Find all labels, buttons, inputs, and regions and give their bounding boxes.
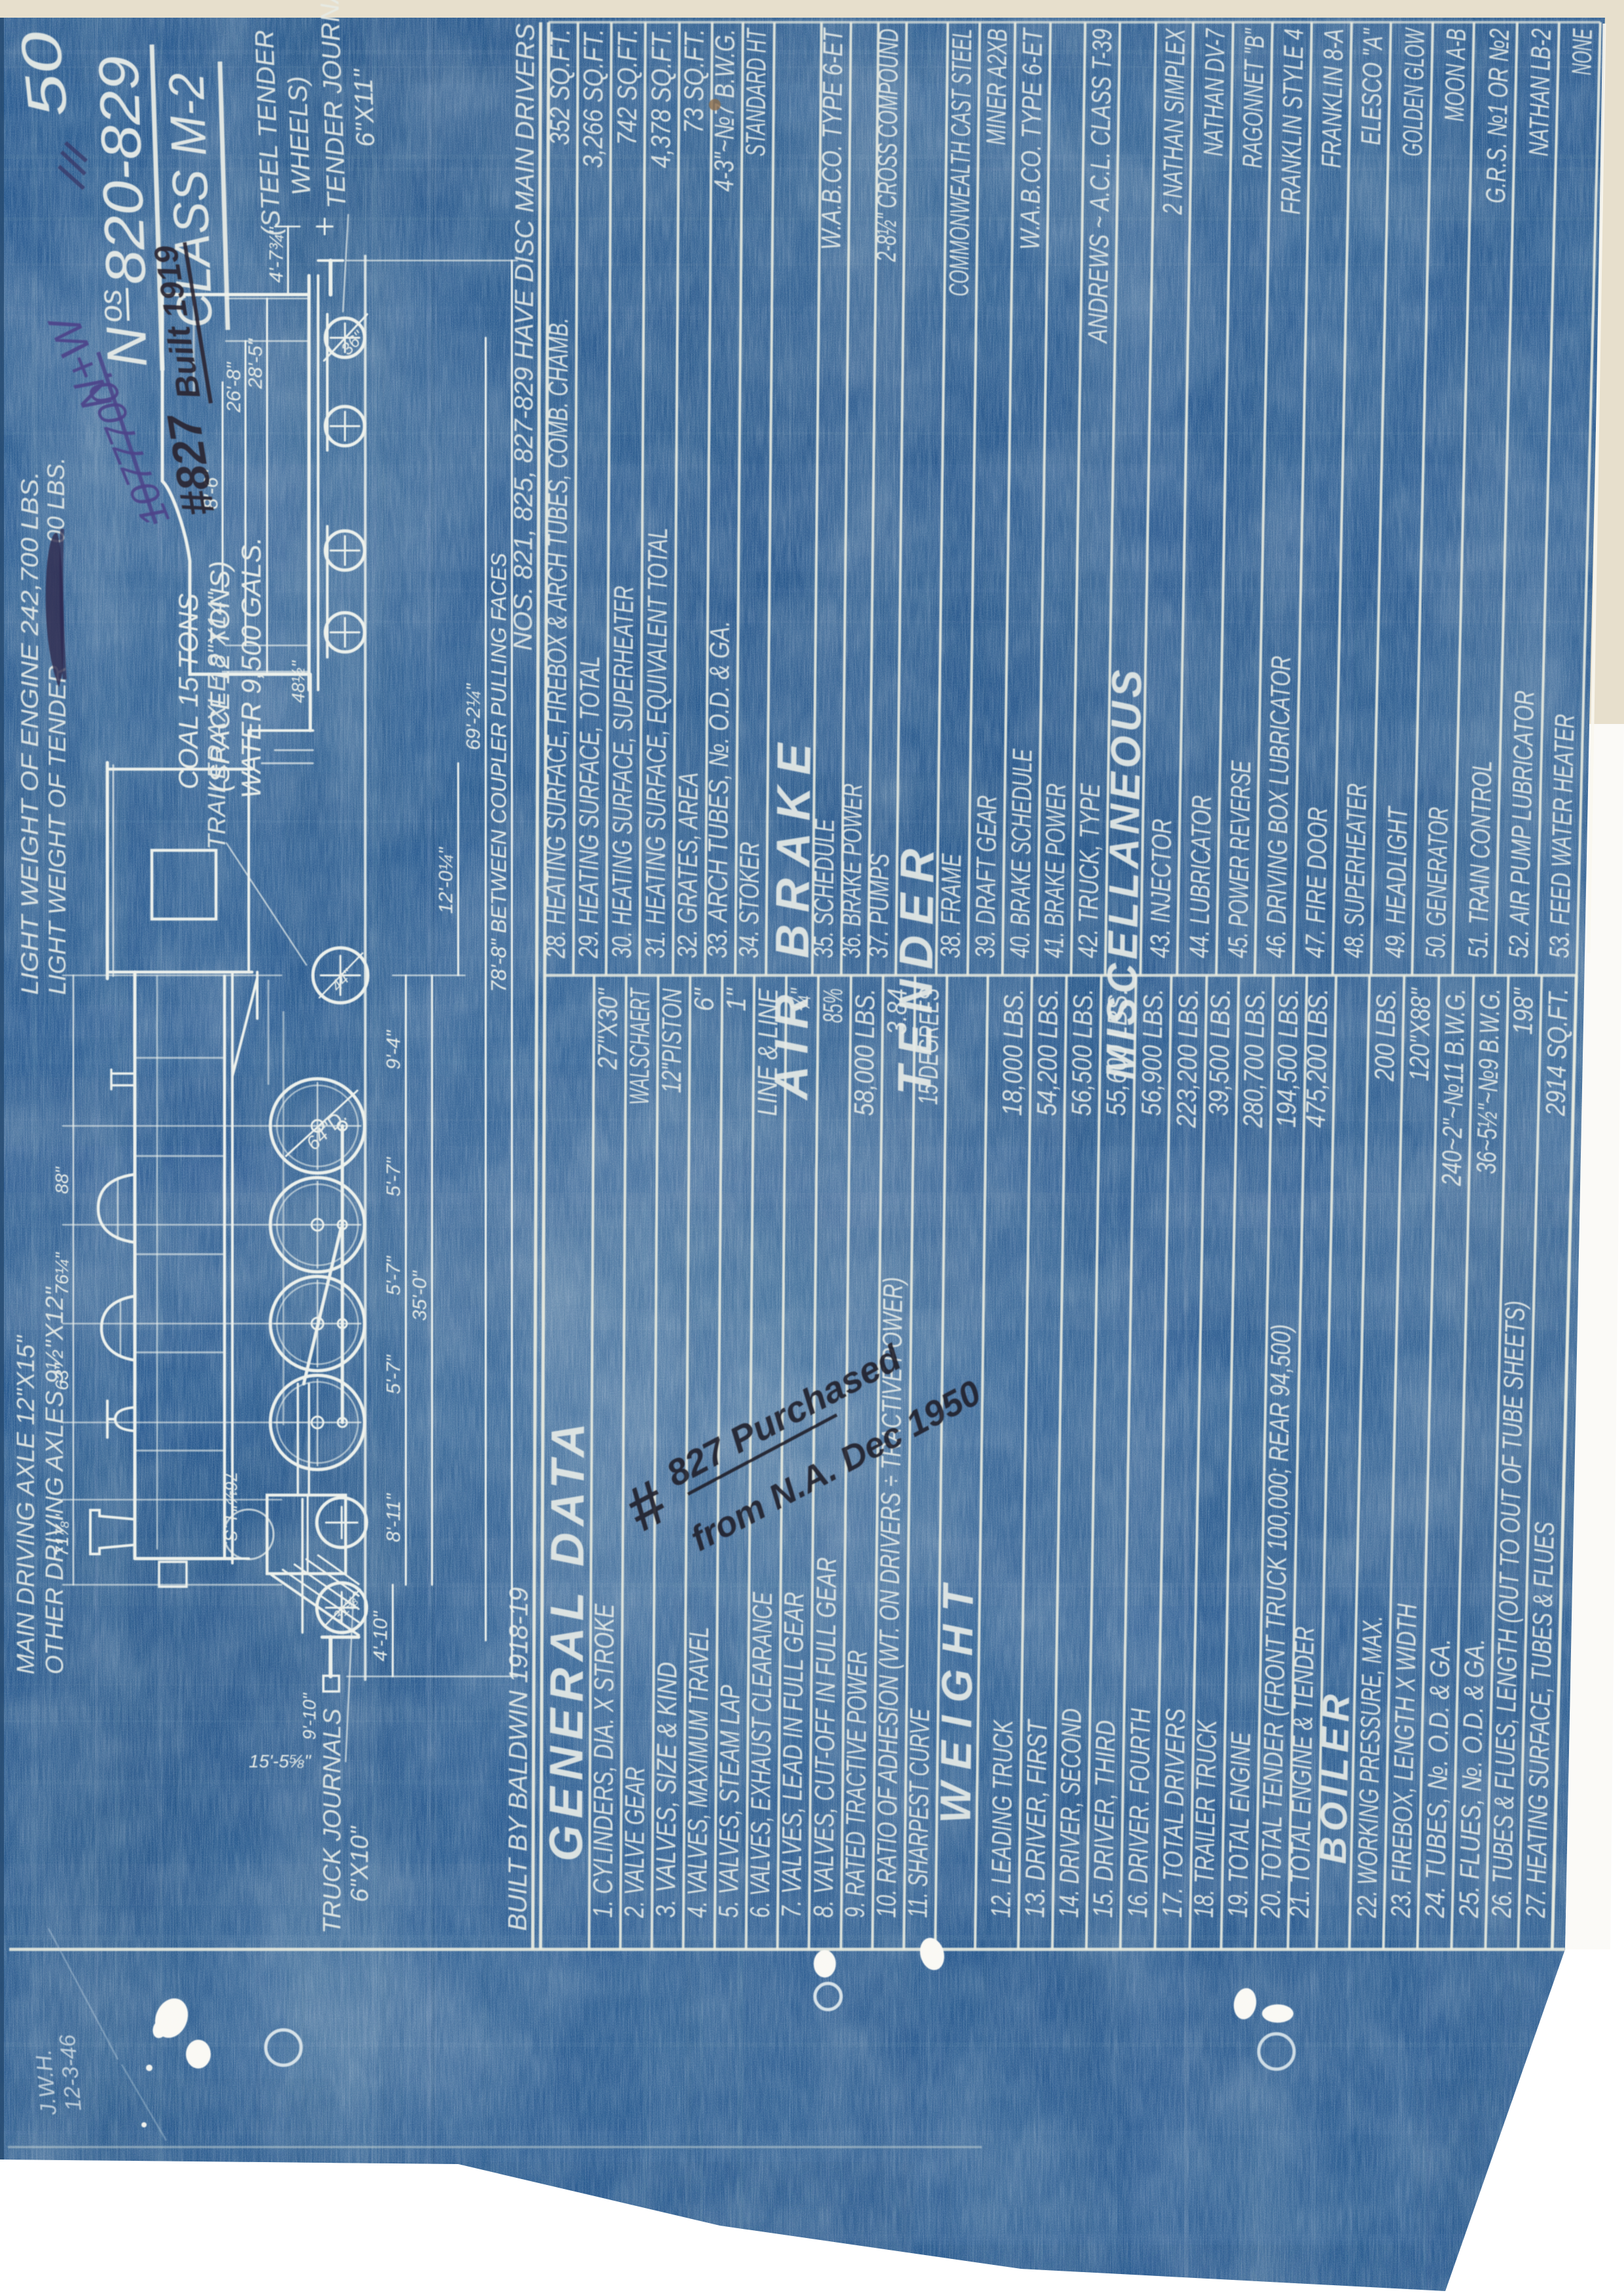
svg-text:TENDER: TENDER	[889, 838, 945, 1095]
svg-text:26'-8": 26'-8"	[223, 361, 245, 413]
svg-text:MOON A-B: MOON A-B	[1439, 28, 1471, 122]
svg-text:35'-0": 35'-0"	[409, 1270, 431, 1321]
svg-text:39,500 LBS.: 39,500 LBS.	[1203, 988, 1236, 1116]
svg-text:COAL 15 TONS: COAL 15 TONS	[173, 593, 204, 789]
svg-text:4. VALVES, MAXIMUM TRAVEL: 4. VALVES, MAXIMUM TRAVEL	[681, 1627, 714, 1918]
svg-text:WEIGHT: WEIGHT	[931, 1572, 983, 1824]
svg-text:11. SHARPEST CURVE: 11. SHARPEST CURVE	[902, 1708, 935, 1918]
svg-text:34. STOKER: 34. STOKER	[733, 842, 765, 958]
svg-text:9'-10": 9'-10"	[299, 1693, 319, 1740]
svg-text:NONE: NONE	[1566, 28, 1598, 76]
svg-text:58,000 LBS.: 58,000 LBS.	[848, 988, 880, 1116]
svg-text:G.R.S. №1 OR №2: G.R.S. №1 OR №2	[1480, 28, 1515, 204]
svg-text:6"X10": 6"X10"	[346, 1826, 374, 1902]
svg-text:5'-7": 5'-7"	[383, 1157, 405, 1197]
svg-text:7. VALVES, LEAD IN FULL GEAR: 7. VALVES, LEAD IN FULL GEAR	[776, 1592, 810, 1918]
svg-text:47. FIRE DOOR: 47. FIRE DOOR	[1299, 806, 1333, 958]
svg-text:194,500 LBS.: 194,500 LBS.	[1271, 988, 1304, 1128]
svg-text:8'-11": 8'-11"	[383, 1492, 405, 1542]
svg-text:41. BRAKE POWER: 41. BRAKE POWER	[1038, 783, 1072, 958]
svg-text:19. TOTAL ENGINE: 19. TOTAL ENGINE	[1222, 1731, 1256, 1919]
svg-text:23. FIREBOX, LENGTH X WIDTH: 23. FIREBOX, LENGTH X WIDTH	[1385, 1603, 1422, 1919]
svg-text:25. FLUES, №. O.D. & GA.: 25. FLUES, №. O.D. & GA.	[1453, 1638, 1490, 1919]
svg-text:2 NATHAN SIMPLEX: 2 NATHAN SIMPLEX	[1157, 27, 1191, 215]
svg-text:17. TOTAL DRIVERS: 17. TOTAL DRIVERS	[1157, 1708, 1191, 1918]
svg-text:FRANKLIN STYLE 4: FRANKLIN STYLE 4	[1275, 28, 1309, 215]
svg-text:3. VALVES, SIZE & KIND: 3. VALVES, SIZE & KIND	[650, 1662, 683, 1918]
svg-text:48½": 48½"	[288, 660, 308, 703]
svg-text:36~5½"~№9 B.W.G.: 36~5½"~№9 B.W.G.	[1471, 988, 1506, 1174]
svg-text:STANDARD HT: STANDARD HT	[740, 27, 772, 156]
svg-text:00 LBS.: 00 LBS.	[43, 457, 69, 543]
svg-text:16. DRIVER. FOURTH: 16. DRIVER. FOURTH	[1122, 1708, 1156, 1918]
svg-text:W.A.B.CO. TYPE 6-ET: W.A.B.CO. TYPE 6-ET	[816, 27, 848, 250]
svg-text:50. GENERATOR: 50. GENERATOR	[1420, 806, 1454, 958]
svg-text:4,378 SQ.FT.: 4,378 SQ.FT.	[645, 29, 677, 168]
svg-text:29. HEATING SURFACE, TOTAL: 29. HEATING SURFACE, TOTAL	[573, 656, 605, 959]
svg-text:MINER A2XB: MINER A2XB	[981, 29, 1013, 146]
svg-text:MAIN DRIVING AXLE 12"X15": MAIN DRIVING AXLE 12"X15"	[12, 1335, 40, 1674]
svg-text:GOLDEN GLOW: GOLDEN GLOW	[1397, 27, 1430, 156]
svg-text:120"X88": 120"X88"	[1403, 987, 1436, 1082]
svg-text:198": 198"	[1507, 986, 1539, 1035]
svg-text:12"PISTON: 12"PISTON	[656, 988, 687, 1093]
svg-text:78'-8" BETWEEN COUPLER PULLING: 78'-8" BETWEEN COUPLER PULLING FACES	[487, 553, 511, 992]
svg-text:ELESCO "A": ELESCO "A"	[1355, 27, 1388, 145]
svg-text:12. LEADING TRUCK: 12. LEADING TRUCK	[985, 1719, 1019, 1918]
svg-text:46. DRIVING BOX LUBRICATOR: 46. DRIVING BOX LUBRICATOR	[1260, 655, 1296, 958]
svg-text:280,700 LBS.: 280,700 LBS.	[1237, 988, 1271, 1129]
svg-text:44. LUBRICATOR: 44. LUBRICATOR	[1183, 795, 1217, 958]
svg-text:69'-2¼": 69'-2¼"	[463, 683, 484, 750]
svg-text:54,200 LBS.: 54,200 LBS.	[1031, 988, 1064, 1116]
svg-text:NATHAN LB-2: NATHAN LB-2	[1523, 28, 1557, 156]
svg-text:3,266 SQ.FT.: 3,266 SQ.FT.	[577, 29, 609, 168]
svg-text:27"X30": 27"X30"	[592, 987, 623, 1070]
svg-text:5'-7": 5'-7"	[383, 1256, 405, 1295]
svg-text:ANDREWS ~ A.C.L. CLASS T-39: ANDREWS ~ A.C.L. CLASS T-39	[1082, 28, 1117, 344]
svg-text:13. DRIVER, FIRST: 13. DRIVER, FIRST	[1019, 1718, 1053, 1918]
svg-text:TRAILER AXLE 8"X14": TRAILER AXLE 8"X14"	[204, 591, 231, 850]
svg-text:COMMONWEALTH CAST STEEL: COMMONWEALTH CAST STEEL	[943, 29, 977, 297]
svg-text:45. POWER REVERSE: 45. POWER REVERSE	[1222, 760, 1256, 958]
svg-text:LIGHT WEIGHT OF ENGINE 242,: LIGHT WEIGHT OF ENGINE 242,700 LBS.	[16, 471, 43, 995]
svg-text:37. PUMPS: 37. PUMPS	[863, 854, 895, 958]
svg-text:12'-0¼": 12'-0¼"	[435, 846, 457, 914]
svg-text:31. HEATING SURFACE, EQUIVALEN: 31. HEATING SURFACE, EQUIVALENT TOTAL	[640, 528, 673, 958]
svg-text:14. DRIVER, SECOND: 14. DRIVER, SECOND	[1053, 1708, 1087, 1918]
svg-text:56,500 LBS.: 56,500 LBS.	[1066, 988, 1098, 1116]
svg-text:6": 6"	[689, 987, 719, 1011]
svg-text:50: 50	[9, 28, 79, 120]
svg-text:32. GRATES, AREA: 32. GRATES, AREA	[672, 772, 704, 958]
svg-text:39. DRAFT GEAR: 39. DRAFT GEAR	[969, 795, 1002, 959]
svg-text:18. TRAILER TRUCK: 18. TRAILER TRUCK	[1188, 1719, 1222, 1918]
svg-text:MISCELLANEOUS: MISCELLANEOUS	[1097, 665, 1151, 1080]
svg-text:NOS. 821, 825, 827-829 HAVE DI: NOS. 821, 825, 827-829 HAVE DISC MAIN DR…	[509, 24, 540, 651]
svg-text:BUILT BY BALDWIN 1918-19: BUILT BY BALDWIN 1918-19	[503, 1587, 533, 1931]
svg-text:22. WORKING PRESSURE, MAX.: 22. WORKING PRESSURE, MAX.	[1351, 1615, 1388, 1919]
svg-text:NATHAN DV-7: NATHAN DV-7	[1198, 27, 1231, 156]
svg-text:WATER 9,500 GALS.: WATER 9,500 GALS.	[236, 537, 266, 799]
svg-text:475,200 LBS.: 475,200 LBS.	[1300, 988, 1333, 1128]
svg-text:9. RATED TRACTIVE POWER: 9. RATED TRACTIVE POWER	[839, 1650, 873, 1918]
svg-text:33. ARCH TUBES, №. O.D. & GA.: 33. ARCH TUBES, №. O.D. & GA.	[702, 621, 735, 958]
svg-text:OTHER DRIVING AXLES 9½"X12": OTHER DRIVING AXLES 9½"X12"	[41, 1286, 69, 1674]
svg-text:TRUCK JOURNALS: TRUCK JOURNALS	[319, 1708, 346, 1934]
svg-text:FRANKLIN 8-A: FRANKLIN 8-A	[1316, 28, 1349, 168]
svg-text:9'-4": 9'-4"	[383, 1030, 405, 1070]
svg-text:240~2"~№11 B.W.G.: 240~2"~№11 B.W.G.	[1435, 988, 1471, 1187]
svg-text:5. VALVES, STEAM LAP: 5. VALVES, STEAM LAP	[713, 1685, 746, 1918]
svg-text:6. VALVES, EXHAUST CLEARANCE: 6. VALVES, EXHAUST CLEARANCE	[744, 1591, 778, 1918]
svg-text:LIGHT WEIGHT OF TENDER: LIGHT WEIGHT OF TENDER	[44, 665, 71, 995]
svg-text:88": 88"	[52, 1166, 72, 1194]
svg-text:73 SQ.FT.: 73 SQ.FT.	[678, 29, 710, 134]
svg-text:RAGONNET "B": RAGONNET "B"	[1236, 27, 1270, 168]
svg-text:742 SQ.FT.: 742 SQ.FT.	[611, 29, 643, 145]
svg-text:2-8½" CROSS COMPOUND: 2-8½" CROSS COMPOUND	[871, 29, 904, 262]
svg-text:AIR BRAKE: AIR BRAKE	[765, 731, 821, 1101]
svg-text:5'-7": 5'-7"	[383, 1354, 405, 1394]
svg-text:223,200 LBS.: 223,200 LBS.	[1170, 988, 1204, 1129]
svg-text:WHEELS): WHEELS)	[283, 76, 316, 196]
svg-text:2914 SQ.FT.: 2914 SQ.FT.	[1540, 988, 1574, 1117]
svg-text:352 SQ.FT.: 352 SQ.FT.	[544, 29, 575, 145]
svg-text:200 LBS.: 200 LBS.	[1369, 988, 1401, 1082]
svg-text:4'-10": 4'-10"	[370, 1610, 391, 1661]
svg-text:BOILER: BOILER	[1312, 1689, 1358, 1864]
svg-text:os: os	[93, 289, 129, 323]
svg-text:WALSCHAERT: WALSCHAERT	[624, 987, 655, 1105]
svg-text:GENERAL DATA: GENERAL DATA	[540, 1417, 594, 1862]
svg-text:15'-5⅝": 15'-5⅝"	[249, 1751, 312, 1771]
svg-text:49. HEADLIGHT: 49. HEADLIGHT	[1379, 805, 1413, 958]
svg-text:76½" L.S.: 76½" L.S.	[221, 1472, 241, 1545]
svg-text:15. DRIVER, THIRD: 15. DRIVER, THIRD	[1087, 1720, 1121, 1918]
svg-text:40. BRAKE SCHEDULE: 40. BRAKE SCHEDULE	[1004, 748, 1038, 958]
svg-text:51. TRAIN CONTROL: 51. TRAIN CONTROL	[1462, 760, 1498, 958]
svg-text:2. VALVE GEAR: 2. VALVE GEAR	[619, 1767, 650, 1919]
svg-text:18,000 LBS.: 18,000 LBS.	[996, 988, 1029, 1116]
svg-text:85%: 85%	[817, 988, 848, 1023]
svg-text:43. INJECTOR: 43. INJECTOR	[1144, 818, 1177, 958]
svg-text:W.A.B.CO. TYPE 6-ET: W.A.B.CO. TYPE 6-ET	[1014, 27, 1048, 250]
svg-text:53. FEED WATER HEATER: 53. FEED WATER HEATER	[1543, 714, 1580, 958]
svg-text:28'-5": 28'-5"	[245, 338, 266, 389]
svg-text:48. SUPERHEATER: 48. SUPERHEATER	[1338, 783, 1372, 958]
svg-text:52. AIR PUMP LUBRICATOR: 52. AIR PUMP LUBRICATOR	[1503, 690, 1540, 958]
svg-text:6"X11": 6"X11"	[349, 67, 380, 147]
svg-text:1": 1"	[721, 987, 751, 1011]
svg-text:8. VALVES, CUT-OFF IN FULL GEA: 8. VALVES, CUT-OFF IN FULL GEAR	[808, 1557, 842, 1918]
svg-text:24. TUBES, №. O.D. & GA.: 24. TUBES, №. O.D. & GA.	[1419, 1638, 1456, 1919]
svg-text:30. HEATING SURFACE, SUPERHEAT: 30. HEATING SURFACE, SUPERHEATER	[606, 586, 639, 958]
svg-text:28. HEATING SURFACE, FIREBOX &: 28. HEATING SURFACE, FIREBOX & ARCH TUBE…	[540, 317, 573, 959]
